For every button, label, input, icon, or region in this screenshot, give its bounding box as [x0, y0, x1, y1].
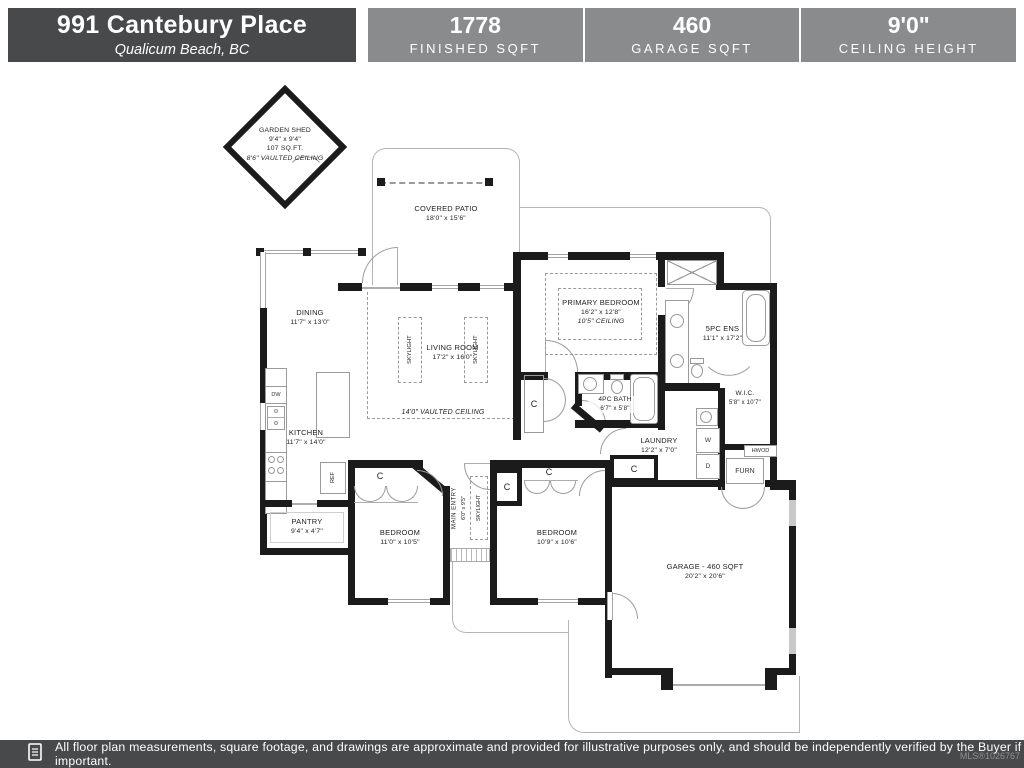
closet-label: C	[543, 467, 555, 477]
stats-panel: 1778 FINISHED SQFT 460 GARAGE SQFT 9'0" …	[368, 8, 1016, 62]
door-leaf	[464, 463, 490, 464]
wall	[348, 598, 388, 605]
porch-screen	[262, 250, 360, 254]
window	[538, 599, 578, 603]
closet-label: C	[504, 482, 511, 492]
room-name: PRIMARY BEDROOM	[550, 298, 652, 308]
closet-label: C	[374, 471, 386, 481]
furnace-label: FURN	[726, 458, 764, 484]
room-dims: 11'7" x 13'0"	[270, 318, 350, 327]
wall	[658, 315, 665, 430]
bifold-door	[402, 486, 418, 502]
closet-box: C	[524, 375, 544, 433]
wall	[777, 668, 796, 675]
wall	[568, 252, 630, 260]
vaulted-ceiling-note: 14'0" VAULTED CEILING	[378, 408, 508, 417]
document-icon	[28, 743, 42, 766]
cased-opening	[292, 503, 317, 505]
window	[260, 252, 266, 310]
vanity-sink	[670, 314, 684, 328]
closet-label: C	[631, 464, 638, 474]
bedroom2-label: BEDROOM 10'9" x 10'6"	[512, 528, 602, 547]
room-name: GARAGE - 460 SQFT	[640, 562, 770, 572]
bifold-door	[386, 486, 402, 502]
skylight-label: SKYLIGHT	[472, 479, 486, 537]
room-name: W.I.C.	[720, 390, 770, 399]
window	[480, 285, 504, 289]
patio-post	[377, 178, 385, 186]
primary-bedroom-label: PRIMARY BEDROOM 16'2" x 12'8" 10'5" CEIL…	[550, 298, 652, 326]
stat-label: GARAGE SQFT	[631, 41, 752, 56]
sink-drain	[274, 421, 278, 425]
room-dims: 6'7" x 5'8"	[588, 405, 642, 413]
wall	[518, 252, 548, 260]
wall	[513, 252, 521, 440]
window	[630, 254, 656, 258]
room-dims: 17'2" x 16'0"	[410, 353, 495, 362]
door-leaf	[397, 247, 398, 285]
porch-post	[303, 248, 311, 256]
room-name: LAUNDRY	[626, 436, 692, 446]
door-arc	[417, 470, 443, 496]
room-dims: 18'0" x 15'6"	[396, 214, 496, 223]
vanity-sink	[670, 354, 684, 368]
room-name: GARDEN SHED	[228, 126, 342, 135]
address-line1: 991 Cantebury Place	[57, 13, 307, 38]
dining-label: DINING 11'7" x 13'0"	[270, 308, 350, 327]
wall	[400, 283, 432, 291]
door-arc	[708, 346, 750, 388]
window	[388, 599, 430, 603]
room-name: 5PC ENS	[690, 324, 755, 334]
wall	[605, 668, 667, 675]
wall	[458, 283, 480, 291]
closet-line	[354, 502, 418, 503]
patio-dashed-line	[380, 182, 492, 184]
wall	[430, 598, 450, 605]
address-line2: Qualicum Beach, BC	[115, 42, 250, 58]
window	[548, 254, 568, 258]
entry-steps	[450, 548, 490, 562]
wall	[490, 598, 538, 605]
room-name: KITCHEN	[272, 428, 340, 438]
washer-label: W	[696, 428, 720, 453]
wall	[660, 383, 720, 391]
stat-ceiling-height: 9'0" CEILING HEIGHT	[799, 8, 1016, 62]
stat-value: 9'0"	[888, 14, 930, 37]
bifold-door	[524, 481, 537, 494]
room-dims: 11'0" x 10'5"	[360, 538, 440, 547]
pantry-label: PANTRY 9'4" x 4'7"	[272, 517, 342, 536]
room-dims: 5'8" x 10'7"	[720, 399, 770, 407]
door-frame	[607, 592, 613, 620]
stat-value: 1778	[450, 14, 501, 37]
mls-number: MLS®1026767	[960, 751, 1020, 761]
garden-shed-label: GARDEN SHED 9'4" x 9'4" 107 SQ.FT. 8'6" …	[228, 126, 342, 163]
bifold-door	[370, 486, 386, 502]
room-name: COVERED PATIO	[396, 204, 496, 214]
room-name: BEDROOM	[360, 528, 440, 538]
door-arc	[579, 470, 605, 496]
toilet-bowl	[611, 380, 623, 394]
bifold-door	[537, 481, 550, 494]
kitchen-label: KITCHEN 11'7" x 14'0"	[272, 428, 340, 447]
room-name: DINING	[270, 308, 350, 318]
closet-label: C	[531, 399, 538, 409]
room-dims: 9'4" x 4'7"	[272, 527, 342, 536]
dryer-label: D	[696, 454, 720, 479]
window	[789, 500, 796, 526]
room-dims: 20'2" x 20'6"	[640, 572, 770, 581]
toilet-bowl	[691, 364, 703, 378]
stat-garage-sqft: 460 GARAGE SQFT	[583, 8, 800, 62]
garage-door-pillar	[765, 668, 777, 690]
wall	[656, 252, 718, 260]
stat-label: FINISHED SQFT	[410, 41, 541, 56]
garage-door-pillar	[661, 668, 673, 690]
floor-plan-page: 991 Cantebury Place Qualicum Beach, BC 1…	[0, 0, 1024, 768]
stat-label: CEILING HEIGHT	[839, 41, 979, 56]
bifold-door	[550, 481, 563, 494]
room-name: LIVING ROOM	[410, 343, 495, 353]
door-arc	[600, 428, 626, 454]
ensuite-label: 5PC ENS 11'1" x 17'2"	[690, 324, 755, 343]
stat-value: 460	[673, 14, 711, 37]
burner	[268, 467, 275, 474]
disclaimer-text: All floor plan measurements, square foot…	[55, 740, 1024, 768]
room-ceiling: 10'5" CEILING	[550, 317, 652, 326]
bifold-door	[544, 400, 566, 422]
wic-label: W.I.C. 5'8" x 10'7"	[720, 390, 770, 407]
sink-basin	[700, 411, 712, 423]
porch-post	[358, 248, 366, 256]
room-name: 4PC BATH	[588, 396, 642, 405]
bath-label: 4PC BATH 6'7" x 5'8"	[588, 396, 642, 413]
room-dims: 11'1" x 17'2"	[690, 334, 755, 343]
bifold-door	[563, 481, 576, 494]
room-name: BEDROOM	[512, 528, 602, 538]
door-arc	[721, 487, 743, 509]
room-dims: 16'2" x 12'8"	[550, 308, 652, 317]
room-ceiling: 8'6" VAULTED CEILING	[228, 154, 342, 163]
main-entry-dims: 6'0" x 9'5"	[459, 480, 469, 536]
ensuite-vanity	[665, 300, 689, 384]
dishwasher-label: DW	[265, 386, 287, 404]
driveway-line	[799, 676, 800, 733]
room-name: PANTRY	[272, 517, 342, 527]
stat-finished-sqft: 1778 FINISHED SQFT	[368, 8, 583, 62]
driveway-outline	[568, 620, 608, 733]
door-arc	[743, 487, 765, 509]
bedroom1-label: BEDROOM 11'0" x 10'5"	[360, 528, 440, 547]
room-dims: 12'2" x 7'0"	[626, 446, 692, 455]
laundry-label: LAUNDRY 12'2" x 7'0"	[626, 436, 692, 455]
wall	[338, 283, 362, 291]
room-dims: 10'9" x 10'6"	[512, 538, 602, 547]
wall	[770, 283, 777, 488]
room-area: 107 SQ.FT.	[228, 144, 342, 153]
sink-divider	[267, 417, 285, 418]
wall	[260, 548, 355, 555]
door-arc	[362, 247, 398, 283]
wall	[716, 283, 776, 290]
bifold-door	[354, 486, 370, 502]
burner	[268, 456, 275, 463]
garage-door-line	[673, 684, 765, 686]
patio-post	[485, 178, 493, 186]
garage-label: GARAGE - 460 SQFT 20'2" x 20'6"	[640, 562, 770, 581]
burner	[277, 456, 284, 463]
disclaimer-bar: All floor plan measurements, square foot…	[0, 740, 1024, 768]
address-panel: 991 Cantebury Place Qualicum Beach, BC	[8, 8, 356, 62]
door-leaf	[666, 288, 694, 289]
room-dims: 11'7" x 14'0"	[272, 438, 340, 447]
bifold-door	[544, 378, 566, 400]
closet-box: C	[492, 468, 522, 506]
window	[789, 628, 796, 654]
shower	[667, 260, 717, 285]
hot-water-label: HWOD	[744, 445, 777, 457]
wall	[260, 500, 292, 507]
living-room-label: LIVING ROOM 17'2" x 16'0"	[410, 343, 495, 362]
window	[432, 285, 458, 289]
closet-box: C	[610, 455, 658, 482]
door-arc	[612, 593, 638, 619]
vanity-sink	[583, 377, 597, 391]
covered-patio-label: COVERED PATIO 18'0" x 15'6"	[396, 204, 496, 223]
driveway-line	[608, 732, 800, 733]
door-opening	[362, 287, 400, 289]
wall	[612, 480, 720, 487]
fridge-label: REF	[326, 464, 340, 492]
wall	[658, 252, 665, 287]
burner	[277, 467, 284, 474]
room-dims: 9'4" x 9'4"	[228, 135, 342, 144]
sink-drain	[274, 409, 278, 413]
